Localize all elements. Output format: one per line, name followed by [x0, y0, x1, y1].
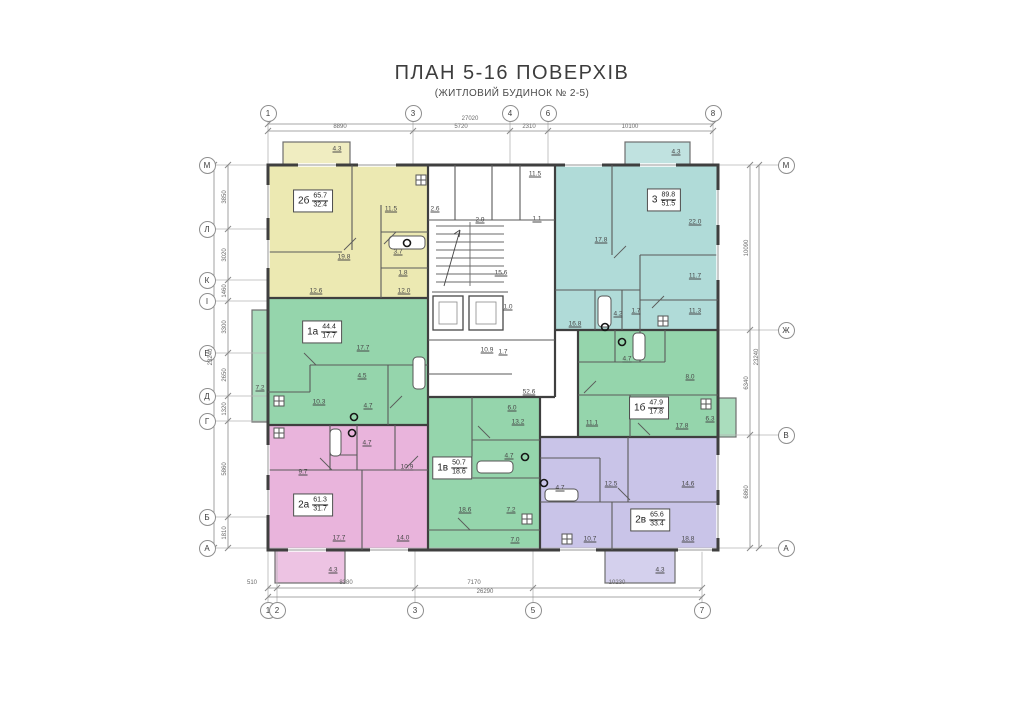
- bathtub-icon: [598, 296, 611, 327]
- apartment-3-area: [555, 165, 718, 330]
- balcony: [283, 142, 350, 165]
- balcony: [605, 550, 675, 583]
- elevator-car: [439, 302, 457, 324]
- bathtub-icon: [330, 429, 341, 456]
- floor-plan-drawing: [0, 0, 1024, 724]
- stairwell: [436, 222, 504, 286]
- apartment-1a-area: [268, 298, 428, 425]
- elevator-shafts: [433, 296, 503, 330]
- balcony: [625, 142, 690, 165]
- floor-plan: ПЛАН 5-16 ПОВЕРХІВ (ЖИТЛОВИЙ БУДИНОК № 2…: [0, 0, 1024, 724]
- apartment-2a-area: [268, 425, 428, 550]
- balcony: [252, 310, 268, 422]
- bathtub-icon: [633, 333, 645, 360]
- elevator-car: [476, 302, 496, 324]
- apartment-fills: [268, 165, 718, 550]
- bathtub-icon: [413, 357, 425, 389]
- bathtub-icon: [545, 489, 578, 501]
- apartment-1b-area: [578, 330, 718, 437]
- bathtub-icon: [477, 461, 513, 473]
- balcony: [275, 550, 345, 583]
- balcony: [718, 398, 736, 437]
